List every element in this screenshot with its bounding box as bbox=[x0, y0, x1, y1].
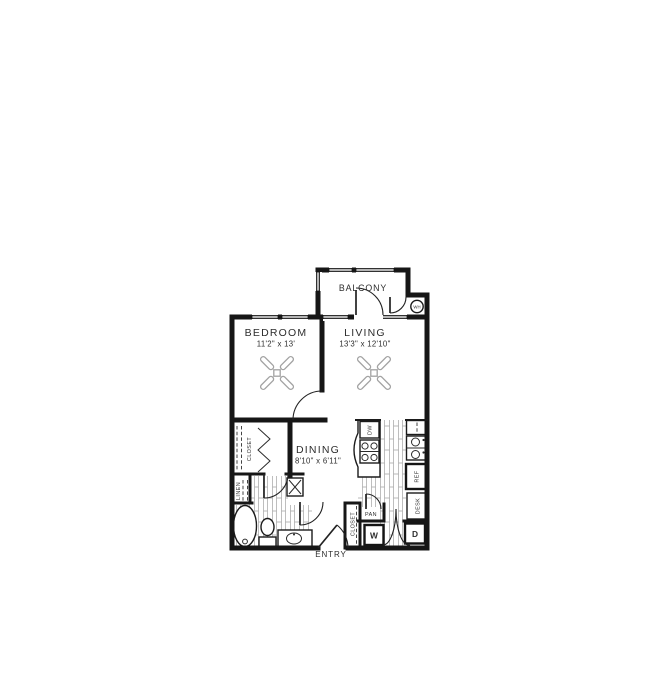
living-label: LIVING bbox=[344, 327, 386, 339]
fan-hub-icon bbox=[274, 370, 280, 376]
water-heater-label: WH bbox=[413, 304, 420, 309]
living-window bbox=[323, 315, 348, 318]
desk-label: DESK bbox=[416, 498, 422, 514]
balcony-door-opening bbox=[354, 313, 383, 322]
balcony-window bbox=[356, 268, 394, 271]
refrigerator-label: REF bbox=[415, 470, 421, 482]
entry-door-leaf bbox=[318, 525, 337, 548]
dining-label: DINING bbox=[296, 444, 340, 456]
linen-shelves bbox=[243, 480, 248, 501]
bedroom-closet-label: CLOSET bbox=[247, 437, 253, 462]
living-window bbox=[382, 315, 407, 318]
bedroom-label: BEDROOM bbox=[245, 327, 308, 339]
balcony-window bbox=[329, 268, 352, 271]
floor-plan-canvas: BALCONY BEDROOM 11'2" x 13' LIVING 13'3"… bbox=[0, 0, 650, 700]
linen-walls bbox=[232, 474, 252, 503]
living-dims: 13'3" x 12'10" bbox=[339, 340, 390, 349]
faucet-icon bbox=[422, 439, 424, 441]
bathtub bbox=[234, 506, 257, 547]
bedroom-door-arc bbox=[293, 391, 322, 420]
bedroom-dims: 11'2" x 13' bbox=[257, 340, 296, 349]
fan-hub-icon bbox=[371, 370, 377, 376]
bedroom-window bbox=[252, 315, 278, 318]
kitchen-floor-2 bbox=[358, 477, 382, 507]
balcony-label: BALCONY bbox=[339, 283, 387, 293]
entry-label: ENTRY bbox=[315, 550, 346, 559]
ceiling-fan-living bbox=[357, 356, 392, 391]
closet-rod bbox=[237, 426, 242, 470]
faucet-icon bbox=[422, 451, 424, 453]
dishwasher-label: DW bbox=[368, 425, 374, 435]
pantry-label: PAN bbox=[365, 512, 377, 518]
ceiling-fan-bedroom bbox=[260, 356, 295, 391]
bedroom-window bbox=[282, 315, 308, 318]
floor-plan-page: BALCONY BEDROOM 11'2" x 13' LIVING 13'3"… bbox=[0, 0, 650, 700]
faucet-icon bbox=[293, 534, 295, 536]
entry-closet-label: CLOSET bbox=[351, 512, 357, 537]
dryer-label: D bbox=[412, 529, 418, 539]
washer-label: W bbox=[370, 531, 378, 541]
closet-bifold-door bbox=[258, 428, 270, 472]
wh-door-arc bbox=[390, 297, 406, 313]
linen-label: LINEN bbox=[236, 482, 242, 500]
dining-dims: 8'10" x 6'11" bbox=[295, 457, 341, 466]
windows bbox=[252, 266, 407, 322]
balcony-side-window bbox=[316, 272, 319, 291]
toilet-bowl bbox=[261, 519, 274, 536]
